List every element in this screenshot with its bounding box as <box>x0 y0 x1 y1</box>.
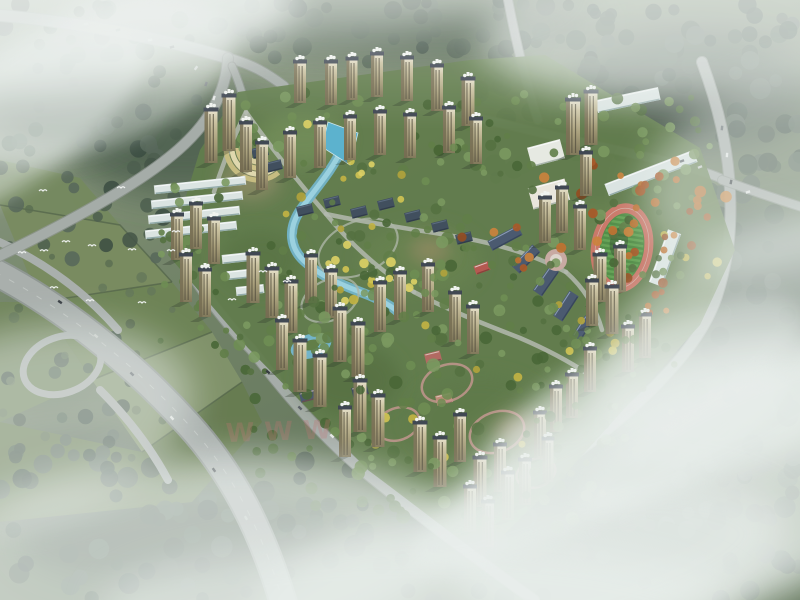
aerial-rendering-canvas: WWW <box>0 0 800 600</box>
viewport: WWW <box>0 0 800 600</box>
atmosphere-tint <box>0 0 800 600</box>
